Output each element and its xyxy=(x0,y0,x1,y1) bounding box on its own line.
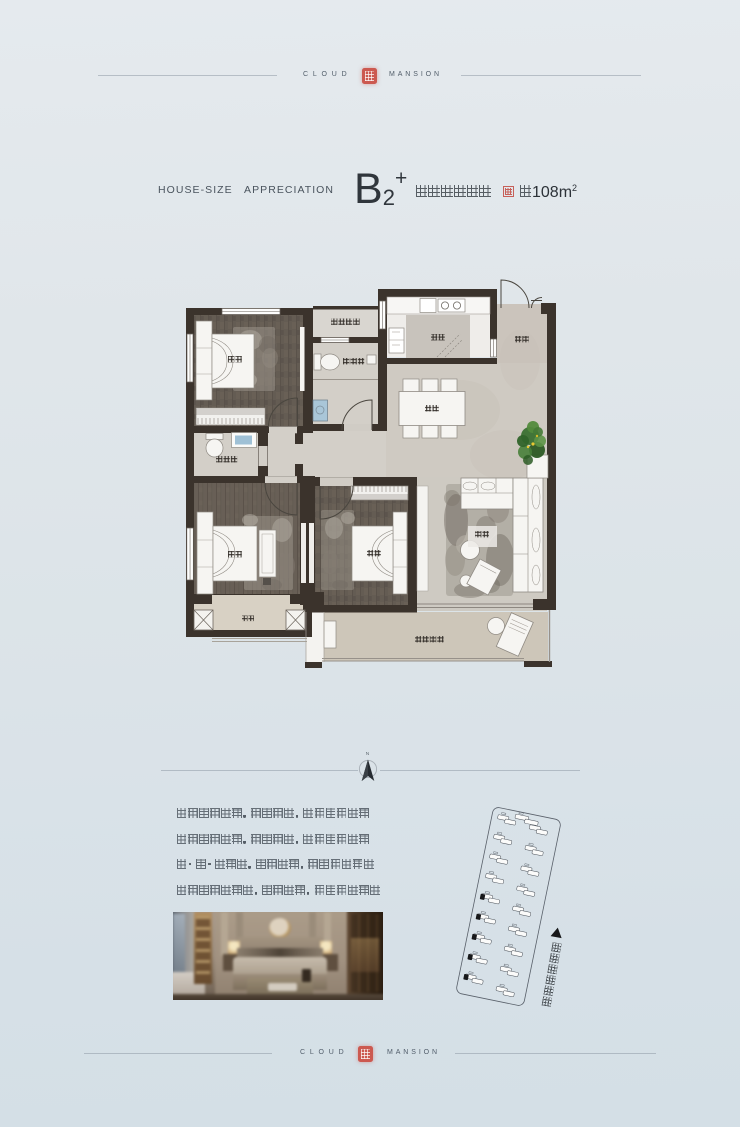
svg-text:N: N xyxy=(366,751,370,757)
